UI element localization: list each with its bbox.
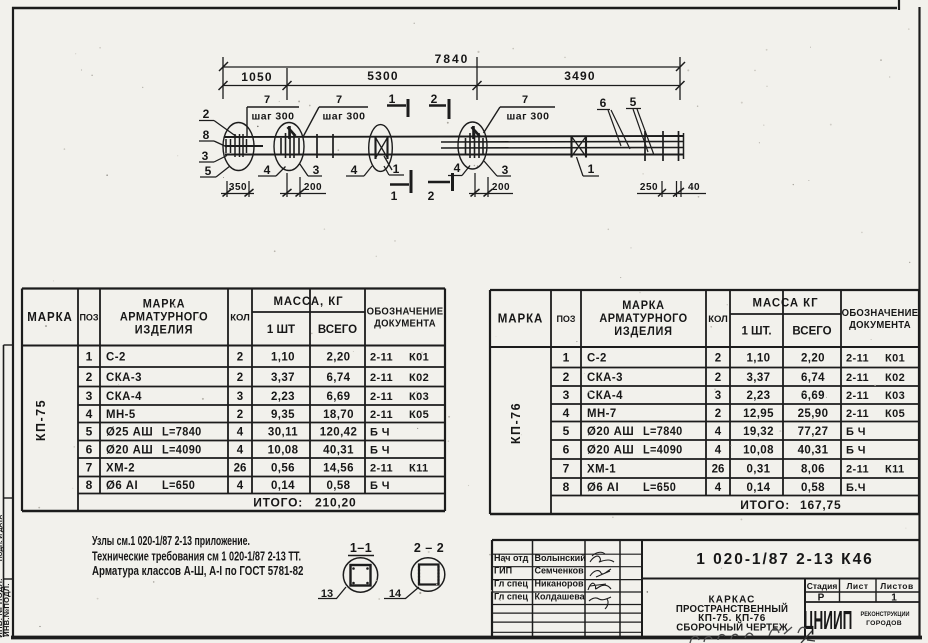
- svg-text:К01: К01: [885, 352, 905, 364]
- svg-text:Гл спец: Гл спец: [494, 578, 528, 588]
- svg-text:4: 4: [86, 407, 93, 421]
- svg-text:2-11: 2-11: [846, 352, 869, 364]
- svg-text:2: 2: [431, 92, 438, 106]
- svg-text:40: 40: [688, 182, 700, 193]
- svg-text:Нач отд: Нач отд: [494, 553, 528, 563]
- svg-text:Р: Р: [818, 593, 825, 604]
- svg-text:6: 6: [86, 442, 93, 456]
- svg-text:6,74: 6,74: [327, 372, 351, 384]
- svg-text:2-11: 2-11: [370, 462, 393, 474]
- svg-text:Технические требования см 1 02: Технические требования см 1 020-1/87 2-1…: [92, 550, 301, 564]
- svg-text:2: 2: [237, 372, 243, 384]
- svg-text:ДОКУМЕНТА: ДОКУМЕНТА: [849, 320, 911, 331]
- svg-text:РЕКОНСТРУКЦИИ: РЕКОНСТРУКЦИИ: [861, 611, 910, 619]
- svg-text:Арматура классов А-Ш, А-I по Г: Арматура классов А-Ш, А-I по ГОСТ 5781-8…: [92, 565, 303, 578]
- svg-text:40,31: 40,31: [323, 444, 354, 456]
- svg-text:167,75: 167,75: [800, 498, 842, 512]
- svg-text:19,32: 19,32: [743, 426, 774, 438]
- svg-text:30,11: 30,11: [268, 427, 298, 439]
- svg-text:26: 26: [234, 462, 247, 474]
- svg-text:КОЛ: КОЛ: [230, 313, 250, 324]
- svg-text:шаг 300: шаг 300: [507, 111, 550, 123]
- svg-text:1 ШТ.: 1 ШТ.: [741, 326, 771, 338]
- svg-text:77,27: 77,27: [798, 426, 829, 438]
- svg-text:ХМ-2: ХМ-2: [106, 461, 135, 474]
- svg-text:ИТОГО:: ИТОГО:: [253, 495, 303, 509]
- svg-text:Б Ч: Б Ч: [846, 445, 866, 457]
- svg-text:К02: К02: [409, 372, 429, 384]
- svg-text:2-11: 2-11: [370, 409, 393, 421]
- svg-text:Колдашева: Колдашева: [535, 591, 586, 601]
- svg-text:2-11: 2-11: [370, 391, 393, 403]
- svg-text:Ø20 АШ: Ø20 АШ: [106, 443, 153, 456]
- svg-text:2: 2: [237, 351, 243, 363]
- svg-text:ОБОЗНАЧЕНИЕ: ОБОЗНАЧЕНИЕ: [842, 308, 919, 319]
- svg-text:0,14: 0,14: [271, 480, 295, 492]
- svg-text:2: 2: [86, 370, 93, 384]
- svg-text:18,70: 18,70: [323, 409, 354, 421]
- svg-text:10,08: 10,08: [743, 445, 774, 457]
- svg-text:2: 2: [715, 352, 721, 364]
- svg-text:7: 7: [563, 462, 570, 476]
- svg-text:К02: К02: [885, 372, 905, 384]
- svg-text:1: 1: [391, 189, 398, 203]
- svg-text:0,14: 0,14: [747, 482, 771, 494]
- svg-text:ИЗДЕЛИЯ: ИЗДЕЛИЯ: [614, 326, 672, 338]
- svg-text:Стадия: Стадия: [807, 581, 838, 591]
- svg-text:4: 4: [264, 163, 271, 177]
- svg-text:2,23: 2,23: [271, 391, 295, 403]
- svg-text:14,56: 14,56: [323, 462, 354, 474]
- svg-text:КП-75: КП-75: [34, 399, 48, 441]
- svg-text:0,58: 0,58: [801, 482, 825, 494]
- svg-text:ГОРОДОВ: ГОРОДОВ: [866, 620, 902, 627]
- svg-text:3,37: 3,37: [747, 372, 771, 384]
- svg-text:К05: К05: [409, 409, 429, 421]
- svg-text:0,56: 0,56: [271, 462, 295, 474]
- svg-text:10,08: 10,08: [268, 444, 299, 456]
- svg-text:7: 7: [336, 94, 342, 106]
- svg-text:5: 5: [86, 425, 93, 439]
- svg-text:6,69: 6,69: [327, 391, 351, 403]
- svg-text:7: 7: [264, 94, 270, 106]
- svg-text:5: 5: [205, 164, 212, 178]
- svg-text:Ø20 АШ: Ø20 АШ: [587, 424, 634, 437]
- svg-text:3: 3: [563, 388, 570, 402]
- svg-text:40,31: 40,31: [798, 445, 829, 457]
- svg-text:L=7840: L=7840: [162, 426, 202, 438]
- svg-text:ИНВ.№ПОДЛ.: ИНВ.№ПОДЛ.: [2, 583, 11, 636]
- svg-text:2,20: 2,20: [327, 351, 351, 363]
- svg-text:МАРКА: МАРКА: [143, 298, 186, 310]
- svg-text:2-11: 2-11: [846, 464, 869, 476]
- svg-text:L=7840: L=7840: [643, 426, 683, 438]
- svg-text:5: 5: [563, 424, 570, 438]
- svg-text:6: 6: [563, 443, 570, 457]
- svg-text:1 ШТ: 1 ШТ: [267, 324, 295, 336]
- svg-text:1 020-1/87 2-13 К46: 1 020-1/87 2-13 К46: [696, 551, 873, 568]
- svg-text:ГИП: ГИП: [494, 565, 512, 575]
- svg-text:С-2: С-2: [587, 351, 607, 364]
- svg-text:200: 200: [492, 182, 510, 193]
- svg-text:шаг 300: шаг 300: [323, 111, 366, 123]
- svg-text:К11: К11: [409, 462, 429, 474]
- svg-text:К01: К01: [409, 351, 429, 363]
- svg-text:МАРКА: МАРКА: [498, 311, 543, 326]
- svg-text:8: 8: [203, 128, 210, 142]
- svg-text:Б Ч: Б Ч: [370, 444, 390, 456]
- svg-text:1: 1: [588, 162, 595, 176]
- svg-text:Б Ч: Б Ч: [846, 426, 866, 438]
- svg-text:L=650: L=650: [643, 482, 676, 494]
- svg-text:ПОДП. И ДАТА: ПОДП. И ДАТА: [0, 515, 4, 562]
- svg-text:9,35: 9,35: [271, 409, 295, 421]
- svg-text:ДОКУМЕНТА: ДОКУМЕНТА: [374, 318, 436, 329]
- svg-text:4: 4: [237, 444, 244, 456]
- svg-text:26: 26: [712, 464, 725, 476]
- svg-text:Ø6 АI: Ø6 АI: [106, 479, 138, 492]
- svg-text:АРМАТУРНОГО: АРМАТУРНОГО: [120, 311, 208, 323]
- svg-text:5300: 5300: [367, 69, 399, 83]
- svg-text:1050: 1050: [241, 70, 273, 84]
- svg-text:3: 3: [715, 390, 721, 402]
- svg-text:350: 350: [229, 182, 247, 193]
- svg-text:2,20: 2,20: [801, 352, 825, 364]
- svg-text:ХМ-1: ХМ-1: [587, 462, 616, 475]
- svg-text:2: 2: [563, 370, 570, 384]
- svg-text:4: 4: [715, 426, 722, 438]
- svg-text:ИТОГО:: ИТОГО:: [740, 498, 790, 512]
- svg-text:ВСЕГО: ВСЕГО: [318, 324, 357, 336]
- svg-text:МАРКА: МАРКА: [27, 310, 72, 325]
- svg-text:2: 2: [715, 372, 721, 384]
- svg-text:200: 200: [304, 182, 322, 193]
- svg-text:12,95: 12,95: [743, 408, 774, 420]
- svg-text:ОБОЗНАЧЕНИЕ: ОБОЗНАЧЕНИЕ: [367, 306, 444, 317]
- svg-text:Б Ч: Б Ч: [370, 427, 390, 439]
- svg-text:4: 4: [563, 406, 570, 420]
- svg-text:Б.Ч: Б.Ч: [846, 482, 866, 494]
- svg-text:1: 1: [86, 349, 93, 363]
- svg-text:2: 2: [237, 409, 243, 421]
- svg-text:210,20: 210,20: [315, 495, 357, 509]
- svg-text:2-11: 2-11: [370, 372, 393, 384]
- svg-text:КП-76: КП-76: [509, 402, 523, 444]
- svg-text:2-11: 2-11: [846, 408, 869, 420]
- svg-text:Гл спец: Гл спец: [494, 591, 528, 601]
- svg-text:К11: К11: [885, 464, 905, 476]
- svg-text:L=4090: L=4090: [162, 444, 202, 456]
- svg-text:ЦНИИП: ЦНИИП: [804, 606, 853, 635]
- svg-text:1: 1: [393, 162, 400, 176]
- svg-text:1: 1: [891, 593, 897, 604]
- svg-text:Волынский: Волынский: [535, 553, 587, 563]
- svg-text:6: 6: [600, 96, 607, 110]
- svg-text:3: 3: [313, 163, 320, 177]
- svg-text:МН-5: МН-5: [106, 407, 136, 420]
- svg-text:1: 1: [389, 92, 396, 106]
- svg-text:3: 3: [502, 163, 509, 177]
- svg-text:ИЗДЕЛИЯ: ИЗДЕЛИЯ: [135, 324, 193, 336]
- svg-text:СКА-4: СКА-4: [106, 389, 142, 402]
- svg-text:8,06: 8,06: [801, 464, 825, 476]
- svg-text:МАССА, КГ: МАССА, КГ: [273, 294, 343, 307]
- svg-text:Ø25 АШ: Ø25 АШ: [106, 425, 153, 438]
- svg-text:14: 14: [389, 588, 402, 600]
- svg-text:1–1: 1–1: [350, 541, 372, 555]
- svg-text:13: 13: [321, 588, 333, 600]
- svg-text:СКА-4: СКА-4: [587, 389, 623, 402]
- svg-text:2-11: 2-11: [846, 372, 869, 384]
- svg-text:4: 4: [351, 163, 358, 177]
- svg-text:АРМАТУРНОГО: АРМАТУРНОГО: [599, 313, 687, 325]
- svg-text:3,37: 3,37: [271, 372, 295, 384]
- svg-text:3: 3: [86, 389, 93, 403]
- svg-text:7: 7: [86, 460, 93, 474]
- svg-text:7: 7: [522, 94, 528, 106]
- svg-text:6,69: 6,69: [801, 390, 825, 402]
- svg-text:Ø20 АШ: Ø20 АШ: [587, 443, 634, 456]
- svg-text:СКА-3: СКА-3: [587, 370, 623, 383]
- svg-text:Лист: Лист: [846, 581, 868, 591]
- svg-text:Б Ч: Б Ч: [370, 480, 390, 492]
- svg-text:L=4090: L=4090: [643, 444, 683, 456]
- svg-text:шаг 300: шаг 300: [252, 111, 295, 123]
- svg-text:1,10: 1,10: [747, 352, 771, 364]
- svg-text:1,10: 1,10: [271, 351, 295, 363]
- svg-text:5: 5: [630, 95, 637, 109]
- svg-text:МН-7: МН-7: [587, 406, 617, 419]
- svg-text:К05: К05: [885, 408, 905, 420]
- svg-text:К03: К03: [409, 391, 429, 403]
- svg-text:8: 8: [86, 478, 93, 492]
- svg-text:7840: 7840: [435, 52, 470, 66]
- svg-text:Никаноров: Никаноров: [535, 578, 584, 588]
- svg-text:К03: К03: [885, 390, 905, 402]
- svg-text:МАССА КГ: МАССА КГ: [753, 296, 819, 309]
- svg-text:3490: 3490: [564, 69, 596, 83]
- svg-text:0,58: 0,58: [327, 480, 351, 492]
- svg-text:L=650: L=650: [162, 480, 195, 492]
- svg-text:4: 4: [715, 445, 722, 457]
- svg-text:3: 3: [237, 391, 243, 403]
- svg-text:0,31: 0,31: [747, 464, 771, 476]
- svg-text:ПОЗ: ПОЗ: [556, 314, 575, 324]
- svg-text:2: 2: [203, 107, 210, 121]
- svg-text:4: 4: [237, 480, 244, 492]
- svg-text:25,90: 25,90: [798, 408, 829, 420]
- svg-text:4: 4: [237, 427, 244, 439]
- svg-text:1: 1: [563, 350, 570, 364]
- svg-text:4: 4: [454, 161, 461, 175]
- svg-text:ПОЗ: ПОЗ: [79, 313, 98, 323]
- svg-text:2: 2: [428, 189, 435, 203]
- svg-text:2-11: 2-11: [846, 390, 869, 402]
- svg-text:2,23: 2,23: [747, 390, 771, 402]
- svg-text:Ø6 АI: Ø6 АI: [587, 480, 619, 493]
- svg-text:ВСЕГО: ВСЕГО: [792, 326, 831, 338]
- svg-text:8: 8: [563, 480, 570, 494]
- svg-text:2: 2: [715, 408, 721, 420]
- svg-text:3: 3: [202, 149, 209, 163]
- svg-text:СКА-3: СКА-3: [106, 370, 142, 383]
- svg-text:Листов: Листов: [880, 581, 913, 591]
- svg-text:120,42: 120,42: [320, 427, 358, 439]
- svg-text:С-2: С-2: [106, 350, 126, 363]
- svg-text:2-11: 2-11: [370, 351, 393, 363]
- svg-text:Семченков: Семченков: [535, 565, 584, 575]
- svg-text:6,74: 6,74: [801, 372, 825, 384]
- svg-text:КОЛ: КОЛ: [708, 314, 728, 325]
- svg-text:250: 250: [640, 182, 658, 193]
- svg-text:Узлы см.1 020-1/87 2-13 прилож: Узлы см.1 020-1/87 2-13 приложение.: [92, 535, 250, 549]
- svg-text:МАРКА: МАРКА: [622, 300, 665, 312]
- svg-text:4: 4: [715, 482, 722, 494]
